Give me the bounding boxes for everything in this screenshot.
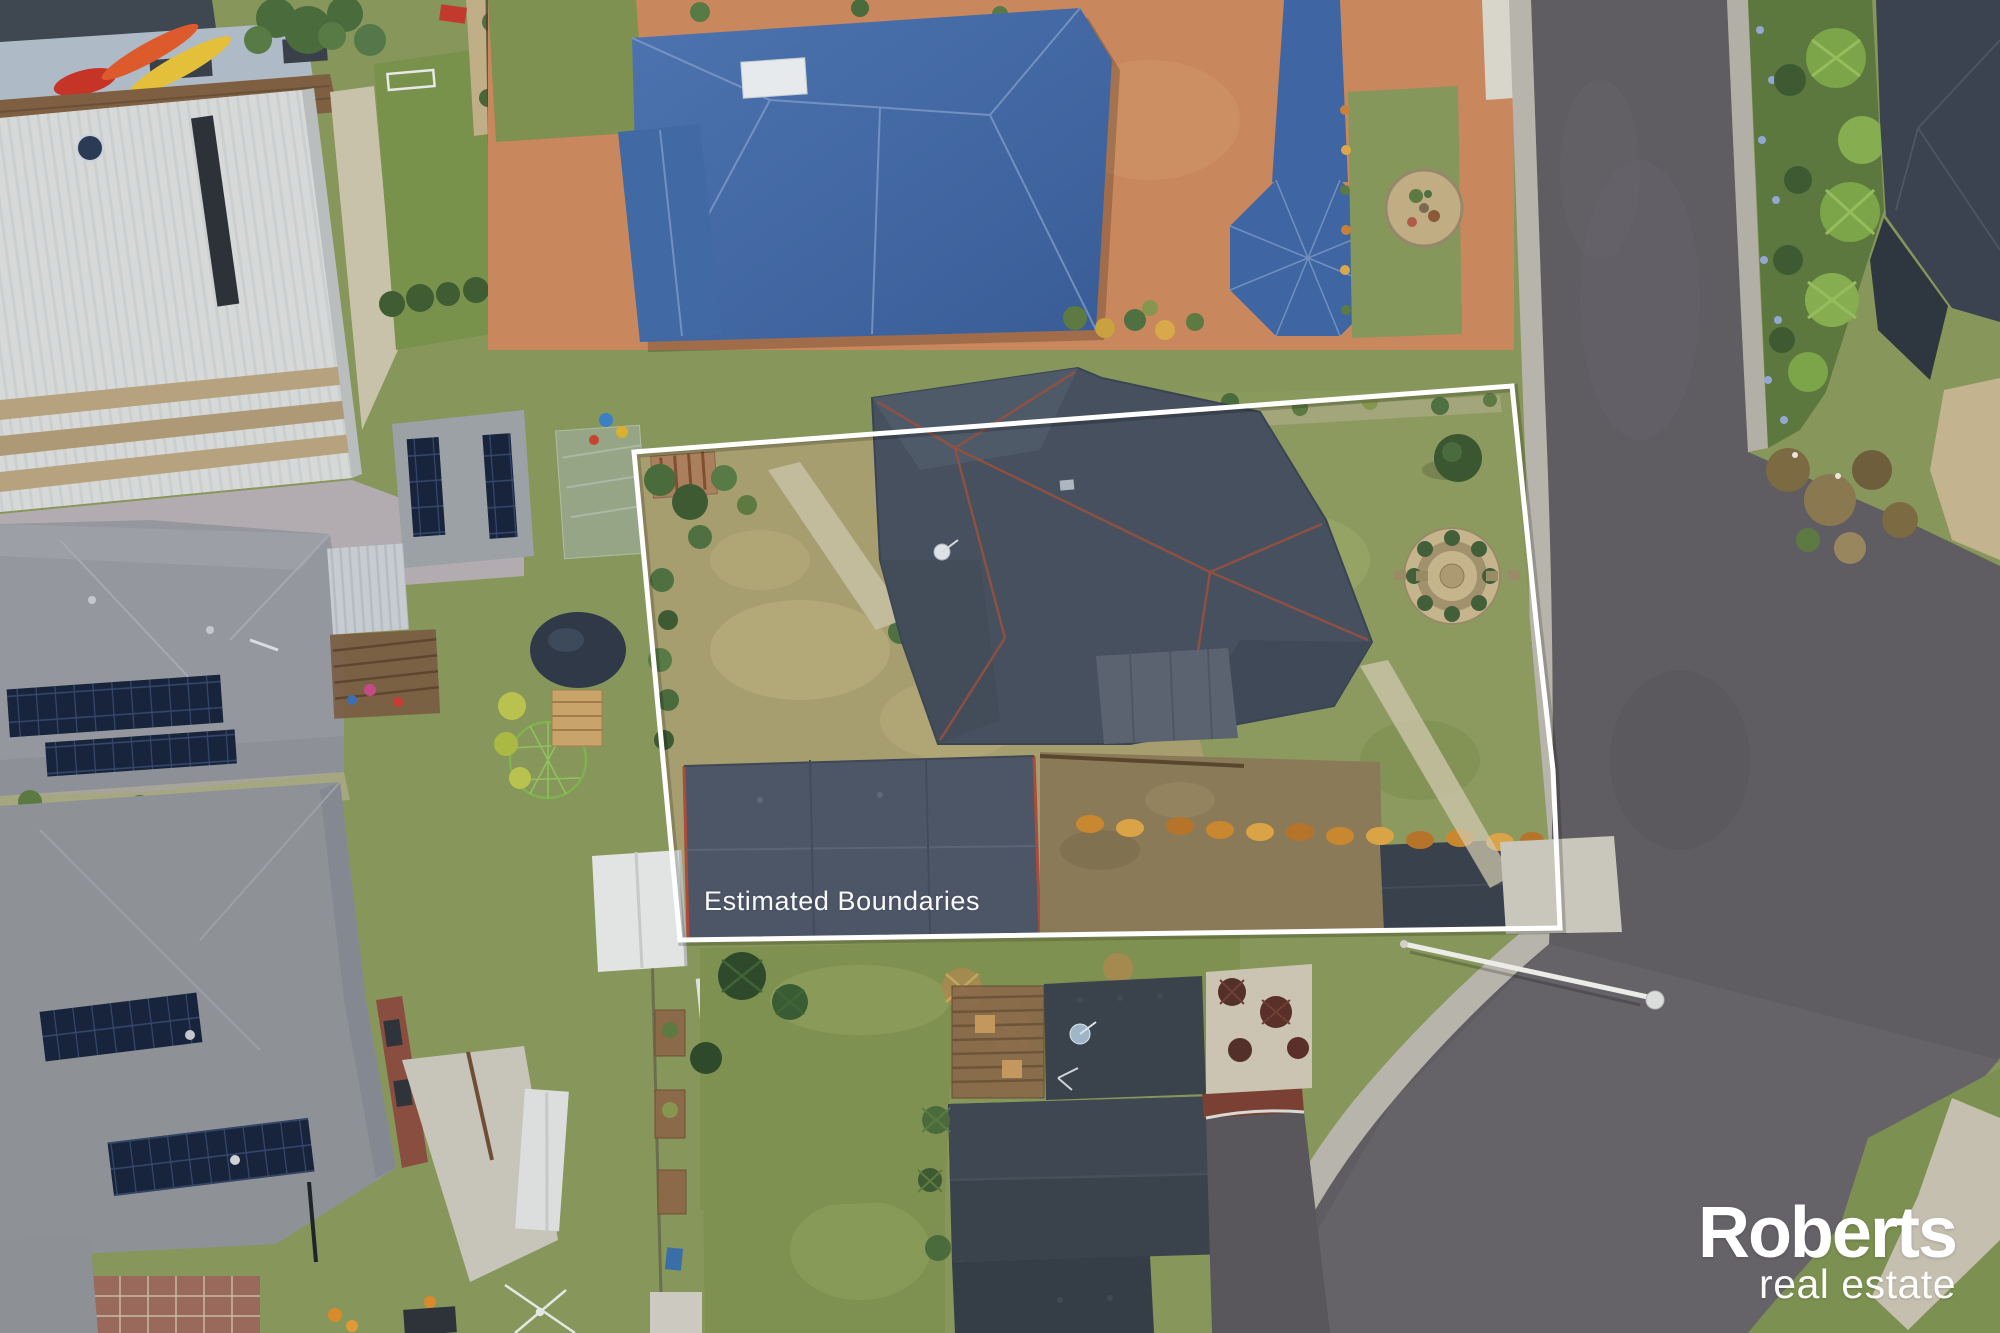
brick-patio <box>92 1276 260 1333</box>
circular-garden-bed <box>1386 170 1462 246</box>
agency-watermark: Roberts real estate <box>1698 1200 1956 1305</box>
boundary-label: Estimated Boundaries <box>704 888 980 915</box>
solar-array <box>407 437 446 537</box>
pergola <box>330 629 440 718</box>
top-right-property <box>1748 0 2000 564</box>
garden-boxes <box>655 1010 686 1214</box>
satellite-dish-icon <box>77 135 103 161</box>
dome-tent <box>530 612 626 688</box>
aerial-photo: Estimated Boundaries Roberts real estate <box>0 0 2000 1333</box>
slatted-pergola <box>952 986 1044 1098</box>
blue-roof-property <box>488 0 1514 352</box>
skylight <box>741 58 807 98</box>
driveway-crossover <box>1482 0 1514 100</box>
timber-frame <box>552 690 602 746</box>
agency-name: Roberts <box>1698 1200 1956 1266</box>
rear-extension-roof <box>1096 648 1238 744</box>
wheelie-bin <box>665 1247 683 1271</box>
front-lawn-patch <box>488 0 646 142</box>
white-roof-house <box>0 88 362 512</box>
patio-cover <box>0 1234 98 1333</box>
aerial-photo-canvas <box>0 0 2000 1333</box>
parked-car <box>403 1306 457 1333</box>
pebble-garden <box>1206 964 1312 1094</box>
agency-suffix: real estate <box>1698 1264 1956 1305</box>
subject-property <box>592 368 1622 1025</box>
carport-roof <box>327 543 409 634</box>
